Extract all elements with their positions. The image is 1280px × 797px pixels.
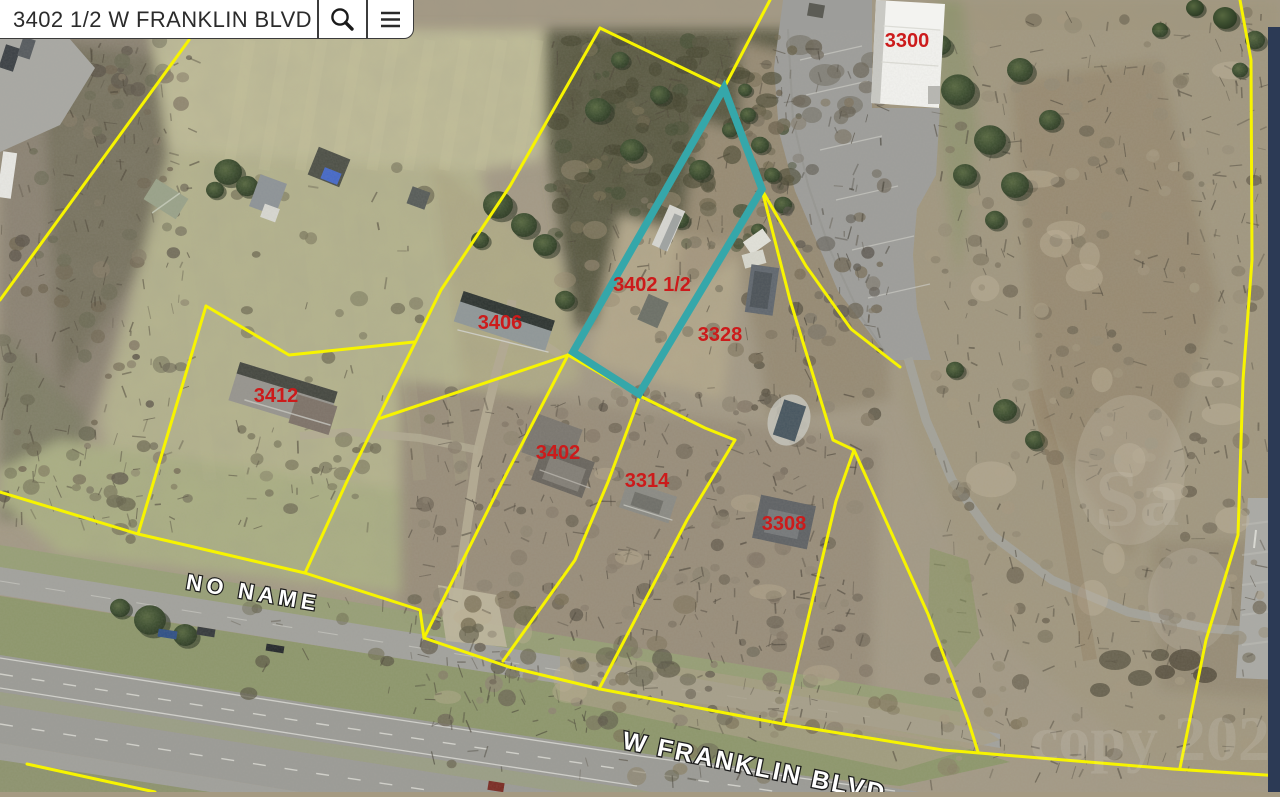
svg-text:3412: 3412 bbox=[254, 385, 299, 407]
svg-text:3328: 3328 bbox=[698, 324, 743, 346]
svg-text:3402 1/2: 3402 1/2 bbox=[613, 274, 691, 296]
svg-text:copy 2023: copy 2023 bbox=[1030, 703, 1280, 774]
svg-text:3402: 3402 bbox=[536, 442, 581, 464]
svg-text:3406: 3406 bbox=[478, 312, 523, 334]
svg-text:3314: 3314 bbox=[625, 470, 670, 492]
svg-text:Sa: Sa bbox=[1095, 455, 1180, 543]
svg-text:3300: 3300 bbox=[885, 30, 930, 52]
svg-text:3308: 3308 bbox=[762, 513, 807, 535]
